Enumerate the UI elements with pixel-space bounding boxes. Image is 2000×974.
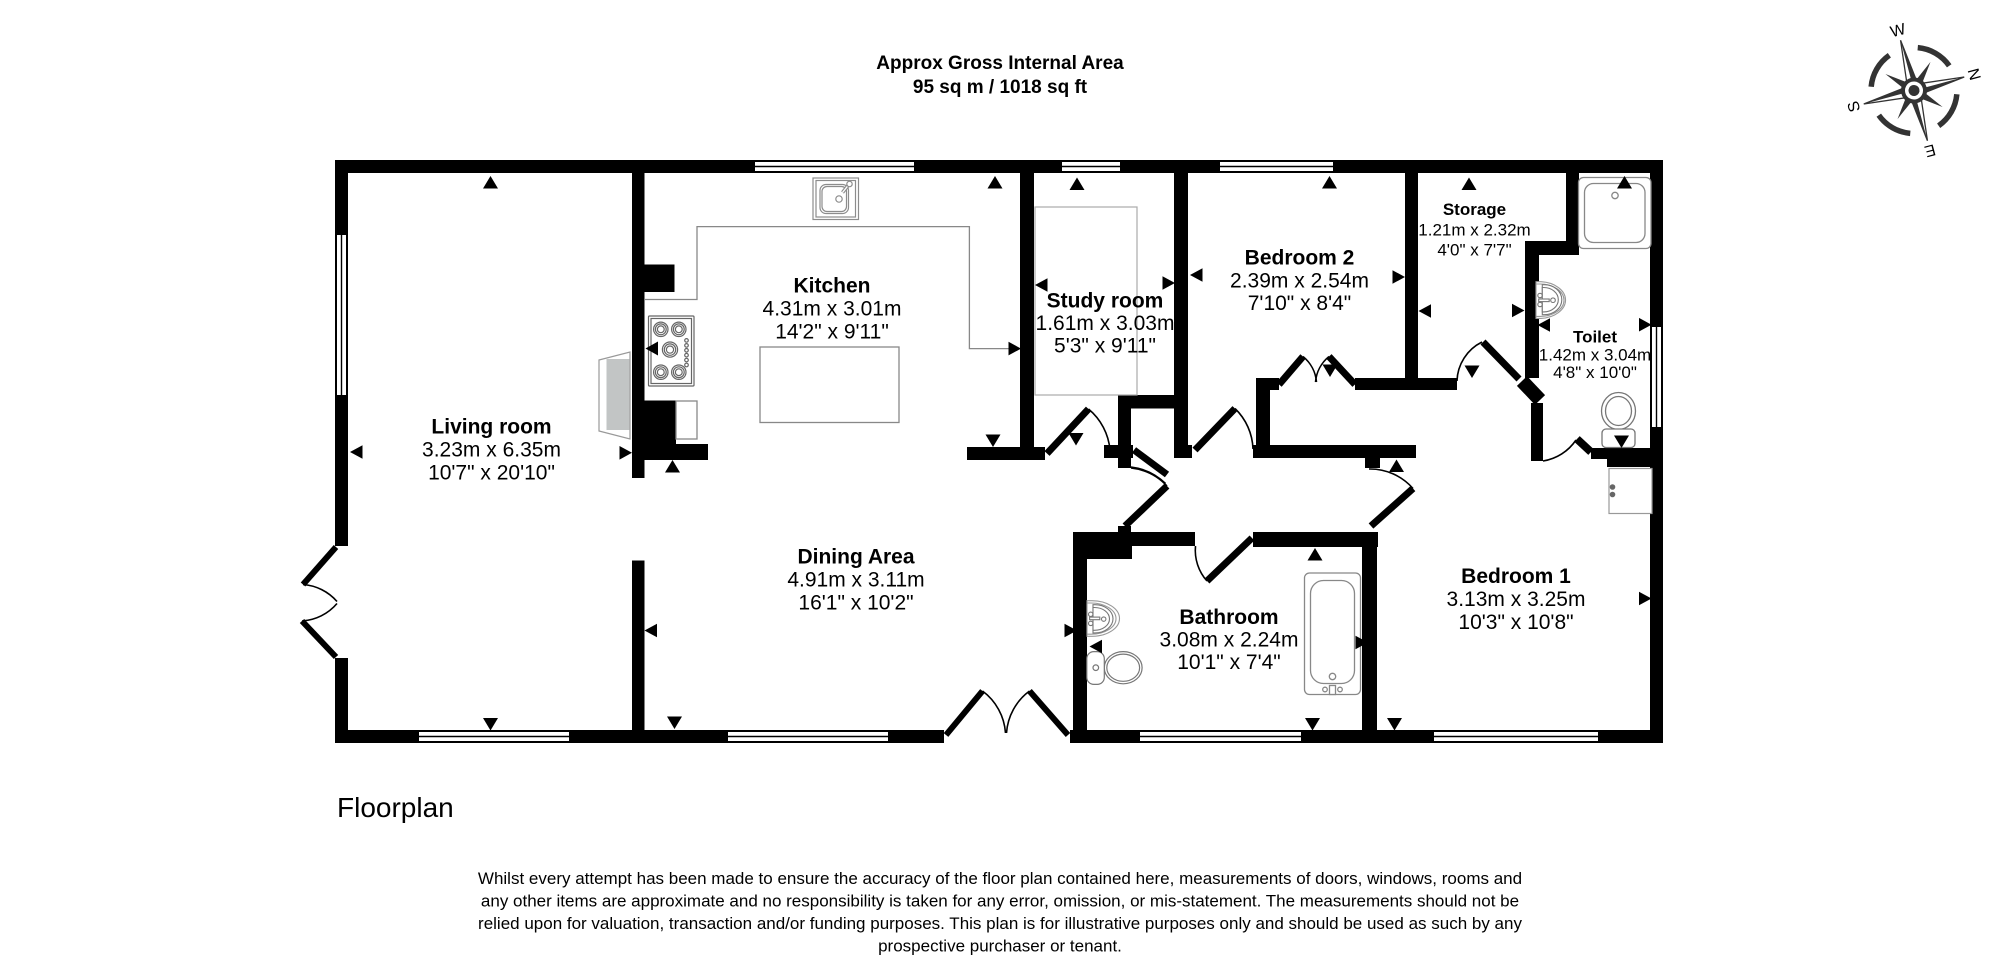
svg-text:Bedroom 2: Bedroom 2 [1245, 247, 1355, 270]
svg-text:10'7" x 20'10": 10'7" x 20'10" [428, 462, 555, 485]
svg-text:16'1" x 10'2": 16'1" x 10'2" [798, 592, 913, 615]
svg-text:4.31m x 3.01m: 4.31m x 3.01m [763, 298, 902, 321]
svg-text:1.61m x 3.03m: 1.61m x 3.03m [1036, 312, 1175, 335]
svg-text:Storage: Storage [1443, 200, 1506, 219]
svg-text:95 sq m / 1018 sq ft: 95 sq m / 1018 sq ft [913, 77, 1088, 98]
svg-text:3.13m x 3.25m: 3.13m x 3.25m [1447, 588, 1586, 611]
svg-text:4'8" x 10'0": 4'8" x 10'0" [1553, 363, 1637, 382]
svg-text:Approx Gross Internal Area: Approx Gross Internal Area [876, 53, 1124, 74]
svg-text:Study room: Study room [1047, 290, 1164, 313]
svg-text:1.21m x 2.32m: 1.21m x 2.32m [1418, 221, 1530, 240]
svg-text:Toilet: Toilet [1573, 328, 1617, 347]
svg-text:any other items are approximat: any other items are approximate and no r… [481, 892, 1519, 911]
svg-text:2.39m x 2.54m: 2.39m x 2.54m [1230, 270, 1369, 293]
svg-text:3.23m x 6.35m: 3.23m x 6.35m [422, 439, 561, 462]
svg-text:3.08m x 2.24m: 3.08m x 2.24m [1160, 629, 1299, 652]
svg-text:relied upon for valuation, tra: relied upon for valuation, transaction a… [478, 914, 1522, 933]
svg-text:Living room: Living room [431, 416, 551, 439]
svg-text:Bedroom 1: Bedroom 1 [1461, 565, 1571, 588]
svg-text:Whilst every attempt has been: Whilst every attempt has been made to en… [478, 869, 1522, 888]
svg-text:Bathroom: Bathroom [1179, 606, 1278, 629]
svg-text:4.91m x 3.11m: 4.91m x 3.11m [787, 569, 924, 592]
svg-text:prospective purchaser or tenan: prospective purchaser or tenant. [878, 937, 1122, 956]
svg-text:5'3" x 9'11": 5'3" x 9'11" [1054, 335, 1156, 358]
svg-text:1.42m x 3.04m: 1.42m x 3.04m [1539, 346, 1651, 365]
svg-text:10'1" x 7'4": 10'1" x 7'4" [1177, 651, 1281, 674]
svg-text:Floorplan: Floorplan [337, 792, 454, 823]
svg-text:4'0" x 7'7": 4'0" x 7'7" [1437, 241, 1511, 260]
svg-text:14'2" x 9'11": 14'2" x 9'11" [775, 321, 889, 344]
svg-text:10'3" x 10'8": 10'3" x 10'8" [1458, 611, 1573, 634]
svg-text:Kitchen: Kitchen [793, 275, 870, 298]
svg-text:7'10" x 8'4": 7'10" x 8'4" [1248, 292, 1352, 315]
svg-text:Dining Area: Dining Area [797, 546, 914, 569]
